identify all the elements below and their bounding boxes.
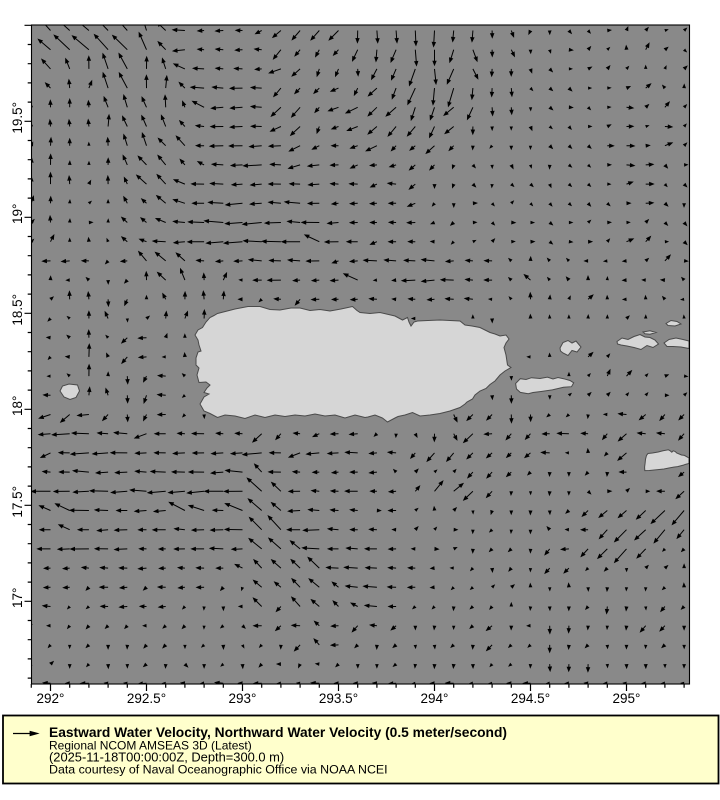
svg-text:Data courtesy of Naval Oceanog: Data courtesy of Naval Oceanographic Off…	[49, 763, 388, 777]
svg-text:295°: 295°	[613, 691, 641, 706]
svg-text:294°: 294°	[421, 691, 449, 706]
svg-text:19°: 19°	[10, 204, 25, 224]
svg-text:18°: 18°	[10, 396, 25, 416]
svg-text:293.5°: 293.5°	[319, 691, 358, 706]
svg-text:18.5°: 18.5°	[10, 294, 25, 326]
svg-text:19.5°: 19.5°	[10, 102, 25, 134]
svg-text:292°: 292°	[37, 691, 65, 706]
svg-text:292.5°: 292.5°	[127, 691, 166, 706]
svg-text:294.5°: 294.5°	[511, 691, 550, 706]
svg-text:17.5°: 17.5°	[10, 486, 25, 518]
svg-text:293°: 293°	[229, 691, 257, 706]
svg-text:17°: 17°	[10, 588, 25, 608]
